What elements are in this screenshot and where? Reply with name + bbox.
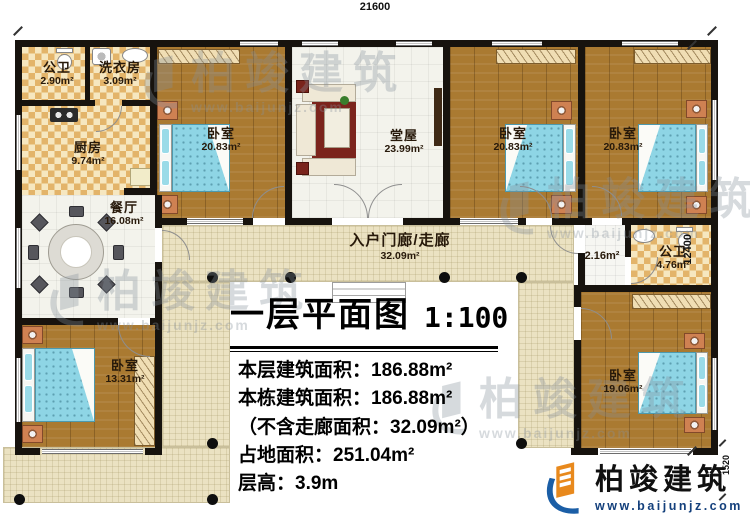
pillow bbox=[24, 353, 33, 381]
room-area: 9.74m² bbox=[71, 155, 104, 167]
room-name: 卧室 bbox=[207, 126, 235, 141]
wall bbox=[403, 218, 443, 225]
nightstand bbox=[22, 326, 43, 344]
room-label-dining: 餐厅 16.08m² bbox=[92, 200, 156, 228]
wall bbox=[15, 40, 718, 47]
room-label-bedroom-bottom-right: 卧室 19.06m² bbox=[592, 368, 654, 396]
pillow bbox=[24, 385, 33, 413]
room-label-bath1: 公卫 2.90m² bbox=[28, 60, 86, 88]
window bbox=[460, 219, 518, 224]
nightstand bbox=[551, 101, 572, 120]
fridge bbox=[130, 168, 152, 186]
room-name: 厨房 bbox=[74, 140, 102, 155]
room-label-hall: 堂屋 23.99m² bbox=[372, 128, 436, 156]
column bbox=[516, 438, 527, 449]
column bbox=[285, 272, 296, 283]
nightstand bbox=[686, 100, 707, 118]
brand-logo-icon bbox=[540, 460, 586, 518]
room-name: 入户门廊/走廊 bbox=[349, 232, 450, 250]
window bbox=[16, 115, 21, 170]
pillow bbox=[698, 160, 706, 186]
wall bbox=[145, 448, 162, 455]
window bbox=[240, 41, 278, 46]
wall bbox=[574, 285, 581, 307]
room-area: 13.31m² bbox=[105, 373, 144, 385]
brand-url: www.baijunjz.com bbox=[595, 499, 743, 513]
bed-blanket-fold bbox=[70, 349, 94, 421]
stat-line: 本栋建筑面积：186.88m² bbox=[238, 385, 480, 413]
sofa bbox=[296, 104, 316, 156]
plan-scale: 1:100 bbox=[424, 304, 508, 332]
column bbox=[516, 272, 527, 283]
room-name: 卧室 bbox=[111, 358, 139, 373]
window bbox=[396, 41, 432, 46]
sofa bbox=[302, 158, 356, 176]
room-name: 卧室 bbox=[609, 126, 637, 141]
room-name: 卧室 bbox=[609, 368, 637, 383]
wall bbox=[518, 218, 526, 225]
wardrobe bbox=[158, 49, 240, 64]
brand-logo: 柏竣建筑 www.baijunjz.com bbox=[540, 460, 743, 518]
nightstand bbox=[157, 101, 178, 120]
pillow bbox=[161, 160, 170, 186]
room-area: 16.08m² bbox=[104, 215, 143, 227]
pillow bbox=[698, 128, 706, 154]
toilet-tank bbox=[676, 227, 693, 232]
coffee-table bbox=[324, 108, 350, 148]
pillow bbox=[698, 384, 706, 408]
dimension-tick bbox=[707, 26, 717, 36]
wall bbox=[155, 262, 162, 325]
room-label-bedroom-top-right: 卧室 20.83m² bbox=[592, 126, 654, 154]
toilet-tank bbox=[56, 48, 73, 53]
room-label-vestibule: 2.16m² bbox=[578, 250, 626, 263]
dimension-tick bbox=[719, 439, 727, 447]
column bbox=[207, 272, 218, 283]
wall bbox=[292, 218, 332, 225]
column bbox=[14, 494, 25, 505]
wall bbox=[22, 100, 95, 106]
column bbox=[207, 438, 218, 449]
title-underline bbox=[230, 346, 498, 349]
wall bbox=[124, 188, 157, 195]
chair bbox=[69, 206, 84, 217]
wall bbox=[571, 448, 598, 455]
nightstand bbox=[22, 425, 43, 443]
plant bbox=[340, 96, 349, 105]
wall bbox=[585, 218, 592, 225]
wardrobe bbox=[496, 49, 576, 64]
window bbox=[16, 358, 21, 422]
window bbox=[712, 100, 717, 180]
room-name: 堂屋 bbox=[390, 128, 418, 143]
sink bbox=[633, 229, 655, 243]
wall bbox=[574, 285, 718, 292]
room-area: 20.83m² bbox=[493, 141, 532, 153]
pillow bbox=[565, 128, 574, 154]
dimension-tick bbox=[13, 26, 23, 36]
room-name: 洗衣房 bbox=[99, 60, 141, 75]
room-name: 餐厅 bbox=[110, 200, 138, 215]
room-label-bedroom-top-mid: 卧室 20.83m² bbox=[482, 126, 544, 154]
chair bbox=[69, 287, 84, 298]
room-area: 20.83m² bbox=[603, 141, 642, 153]
side-table bbox=[296, 80, 309, 93]
room-area: 2.16m² bbox=[585, 250, 620, 263]
terrace-floor bbox=[3, 447, 230, 503]
stove bbox=[50, 108, 78, 122]
pillow bbox=[161, 128, 170, 154]
plan-title: 一层平面图 bbox=[230, 298, 410, 332]
wall bbox=[155, 318, 162, 455]
chair bbox=[28, 245, 39, 260]
wall bbox=[450, 218, 460, 225]
room-area: 23.99m² bbox=[384, 143, 423, 155]
wall bbox=[552, 218, 578, 225]
dining-table-top bbox=[60, 236, 92, 268]
bed bbox=[35, 348, 95, 422]
stats-block: 本层建筑面积：186.88m² 本栋建筑面积：186.88m² （不含走廊面积：… bbox=[238, 357, 480, 498]
plan-title-row: 一层平面图 1:100 bbox=[230, 298, 508, 332]
room-label-kitchen: 厨房 9.74m² bbox=[58, 140, 118, 168]
window bbox=[16, 228, 21, 288]
room-area: 3.09m² bbox=[103, 75, 136, 87]
room-label-corridor: 入户门廊/走廊 32.09m² bbox=[330, 232, 470, 262]
wall bbox=[443, 47, 450, 225]
wardrobe bbox=[634, 49, 711, 64]
pillow bbox=[698, 356, 706, 380]
stat-line: （不含走廊面积：32.09m²） bbox=[238, 414, 480, 442]
room-name: 卧室 bbox=[499, 126, 527, 141]
stat-line: 占地面积：251.04m² bbox=[238, 442, 480, 470]
pillow bbox=[565, 160, 574, 186]
wall bbox=[155, 195, 162, 228]
room-area: 20.83m² bbox=[201, 141, 240, 153]
wall bbox=[15, 318, 118, 325]
room-label-bedroom-bottom-left: 卧室 13.31m² bbox=[94, 358, 156, 386]
column bbox=[439, 272, 450, 283]
room-label-laundry: 洗衣房 3.09m² bbox=[88, 60, 152, 88]
room-area: 32.09m² bbox=[380, 250, 419, 262]
room-area: 2.90m² bbox=[40, 75, 73, 87]
wall bbox=[693, 448, 718, 455]
window bbox=[492, 41, 542, 46]
stat-line: 层高：3.9m bbox=[238, 470, 480, 498]
wardrobe bbox=[632, 294, 711, 309]
walkway-left-floor bbox=[162, 282, 230, 447]
brand-name: 柏竣建筑 bbox=[595, 466, 743, 495]
nightstand bbox=[551, 195, 572, 214]
wall bbox=[15, 448, 40, 455]
wall bbox=[622, 218, 718, 225]
stat-line: 本层建筑面积：186.88m² bbox=[238, 357, 480, 385]
column bbox=[207, 494, 218, 505]
dimension-right: 12400 bbox=[682, 234, 694, 265]
wall bbox=[122, 100, 155, 106]
wall bbox=[574, 340, 581, 455]
window bbox=[712, 358, 717, 430]
window bbox=[302, 41, 338, 46]
nightstand bbox=[686, 196, 707, 214]
walkway-right-floor bbox=[518, 282, 574, 448]
room-label-bedroom-top-left: 卧室 20.83m² bbox=[190, 126, 252, 154]
title-underline bbox=[230, 351, 498, 352]
wall bbox=[243, 218, 253, 225]
room-area: 19.06m² bbox=[603, 383, 642, 395]
window bbox=[42, 449, 143, 454]
nightstand bbox=[684, 333, 705, 349]
side-table bbox=[296, 162, 309, 175]
window bbox=[600, 449, 691, 454]
room-name: 公卫 bbox=[43, 60, 71, 75]
wall bbox=[285, 47, 292, 225]
dimension-top: 21600 bbox=[340, 1, 410, 13]
window bbox=[622, 41, 678, 46]
floor-plan: 柏竣建筑 www.baijunjz.com 柏竣建筑 www.baijunjz.… bbox=[0, 0, 750, 530]
window bbox=[187, 219, 243, 224]
chair bbox=[113, 245, 124, 260]
wall bbox=[578, 47, 585, 225]
nightstand bbox=[684, 417, 705, 433]
